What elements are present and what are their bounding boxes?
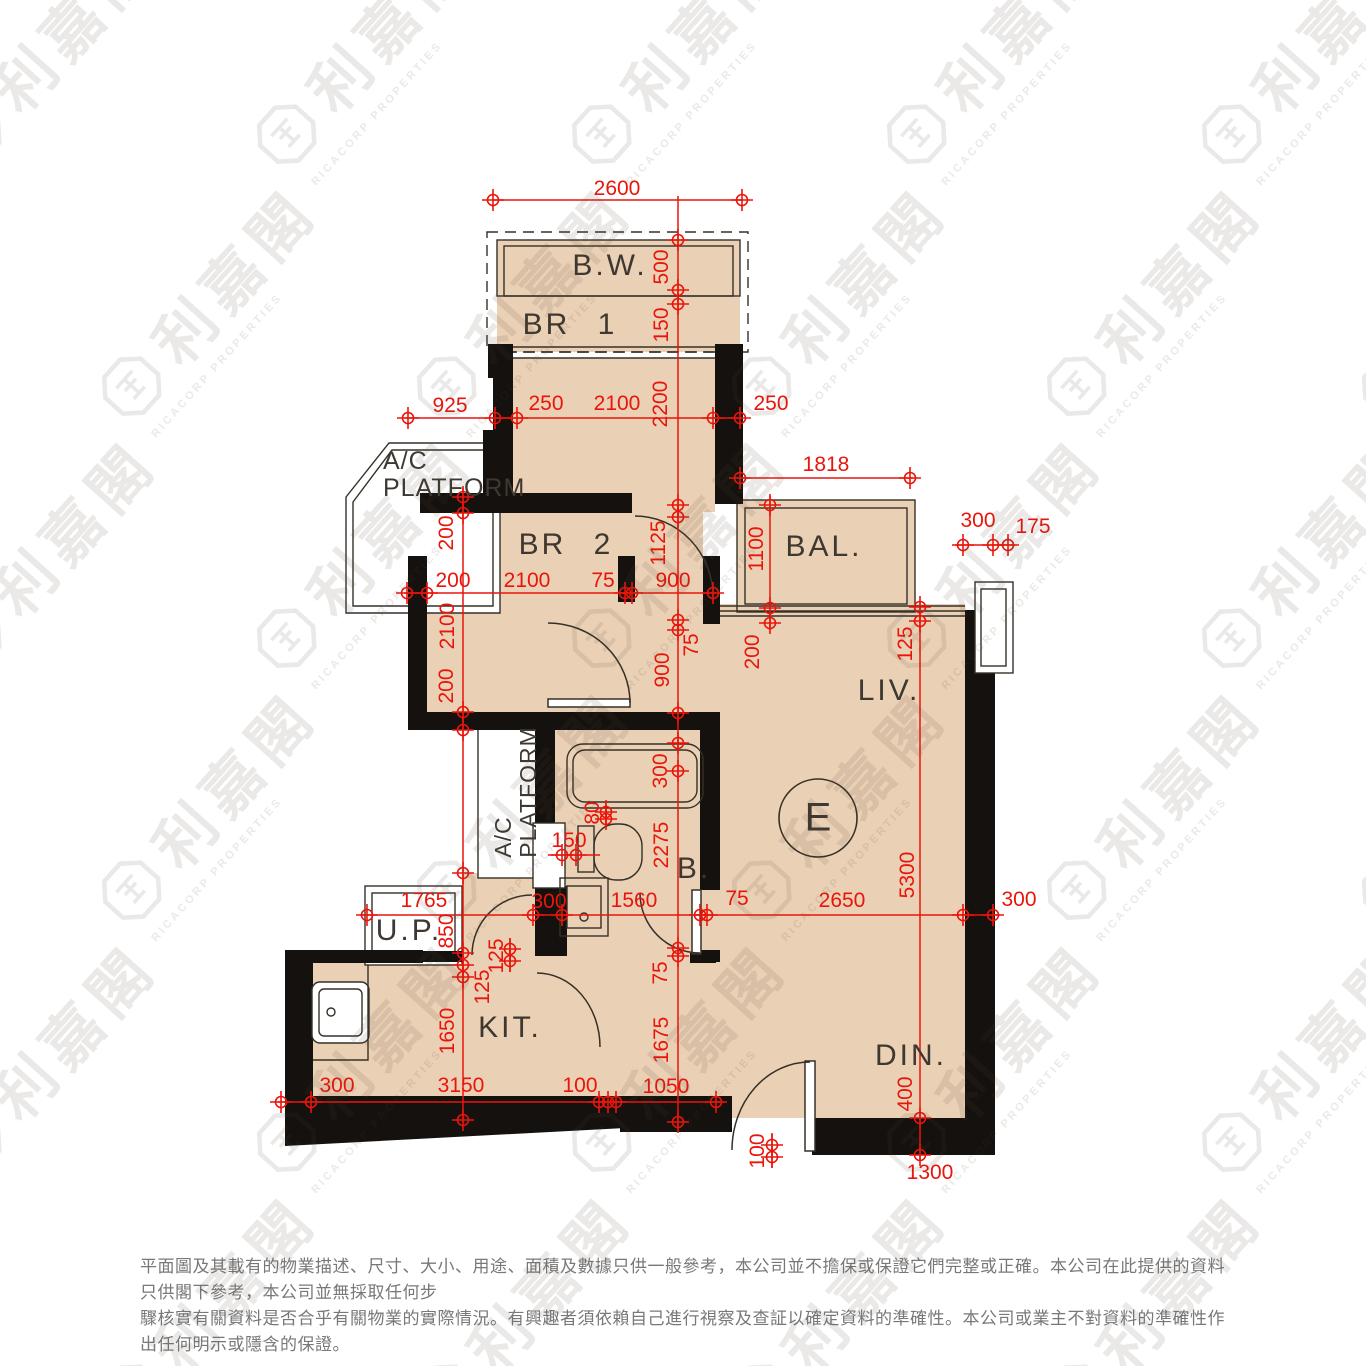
dim-label: 2200 — [649, 381, 673, 428]
ac-platform-line2: PLATFORM — [383, 475, 525, 502]
dim-label: 200 — [741, 634, 765, 669]
unit-label: E — [805, 796, 832, 841]
dim-label: 100 — [746, 1133, 770, 1168]
ac-platform-line1: A/C — [491, 726, 516, 858]
floorplan-page: 2600 925 250 2100 250 1818 300 175 200 2… — [0, 0, 1366, 1366]
dim-label: 1300 — [907, 1161, 954, 1185]
dim-label: 500 — [650, 249, 674, 284]
room-label-ac-platform-top: A/C PLATFORM — [383, 448, 525, 502]
dim-label: 5300 — [896, 852, 920, 899]
dim-label: 75 — [725, 887, 748, 911]
dim-label: 1675 — [650, 1017, 674, 1064]
dim-label: 200 — [435, 668, 459, 703]
dim-label: 125 — [894, 626, 918, 661]
dim-label: 125 — [471, 969, 495, 1004]
dim-label: 125 — [485, 938, 509, 973]
dim-label: 250 — [528, 392, 563, 416]
dim-label: 200 — [435, 569, 470, 593]
ac-platform-line1: A/C — [383, 448, 525, 475]
dim-label: 175 — [1015, 515, 1050, 539]
dim-label: 75 — [591, 569, 614, 593]
dim-label: 300 — [319, 1074, 354, 1098]
dim-label: 3150 — [438, 1074, 485, 1098]
dim-label: 300 — [531, 890, 566, 914]
dim-label: 1125 — [647, 520, 671, 565]
dim-label: 200 — [435, 515, 459, 550]
dim-label: 75 — [680, 633, 704, 656]
room-label-bw: B.W. — [572, 249, 647, 283]
dim-label: 300 — [649, 753, 673, 788]
room-label-kit: KIT. — [478, 1011, 542, 1045]
dim-label: 2600 — [594, 177, 641, 201]
dim-label: 300 — [960, 509, 995, 533]
room-label-up: U.P. — [376, 914, 442, 948]
disclaimer-zh-line1: 平面圖及其載有的物業描述、尺寸、大小、用途、面積及數據只供一般參考，本公司並不擔… — [140, 1254, 1235, 1306]
dim-label: 400 — [894, 1076, 918, 1111]
room-label-ac-platform-mid: A/C PLATFORM — [491, 726, 541, 858]
dim-label: 900 — [655, 569, 690, 593]
dim-label: 2100 — [594, 392, 641, 416]
dim-label: 150 — [551, 829, 586, 853]
dim-label: 75 — [649, 961, 673, 984]
dim-label: 925 — [432, 394, 467, 418]
dim-label: 2275 — [650, 822, 674, 869]
dim-label: 2650 — [819, 889, 866, 913]
dim-label: 1560 — [611, 889, 658, 913]
dim-label: 1050 — [643, 1075, 690, 1099]
dim-label: 2100 — [504, 569, 551, 593]
dim-label: 900 — [651, 652, 675, 687]
floorplan-drawing — [0, 0, 1366, 1366]
dim-label: 1765 — [401, 889, 448, 913]
room-label-liv: LIV. — [858, 674, 921, 708]
room-label-din: DIN. — [875, 1039, 947, 1073]
dim-label: 1818 — [803, 453, 850, 477]
dim-label: 80 — [581, 801, 605, 824]
dim-label: 100 — [562, 1074, 597, 1098]
dim-label: 1650 — [436, 1008, 460, 1055]
room-label-bal: BAL. — [785, 530, 862, 564]
dim-label: 250 — [753, 392, 788, 416]
room-label-bath: B. — [677, 852, 711, 886]
dim-label: 2100 — [436, 603, 460, 650]
dim-label: 150 — [650, 307, 674, 342]
disclaimer-zh-line2: 驟核實有關資料是否合乎有關物業的實際情況。有興趣者須依賴自己進行視察及查証以確定… — [140, 1306, 1235, 1358]
room-label-br1: BR 1 — [523, 308, 618, 342]
disclaimer: 平面圖及其載有的物業描述、尺寸、大小、用途、面積及數據只供一般參考，本公司並不擔… — [140, 1254, 1235, 1366]
dim-label: 300 — [1001, 888, 1036, 912]
dim-label: 1100 — [745, 526, 769, 571]
room-label-br2: BR 2 — [519, 528, 614, 562]
ac-platform-line2: PLATFORM — [516, 726, 541, 858]
